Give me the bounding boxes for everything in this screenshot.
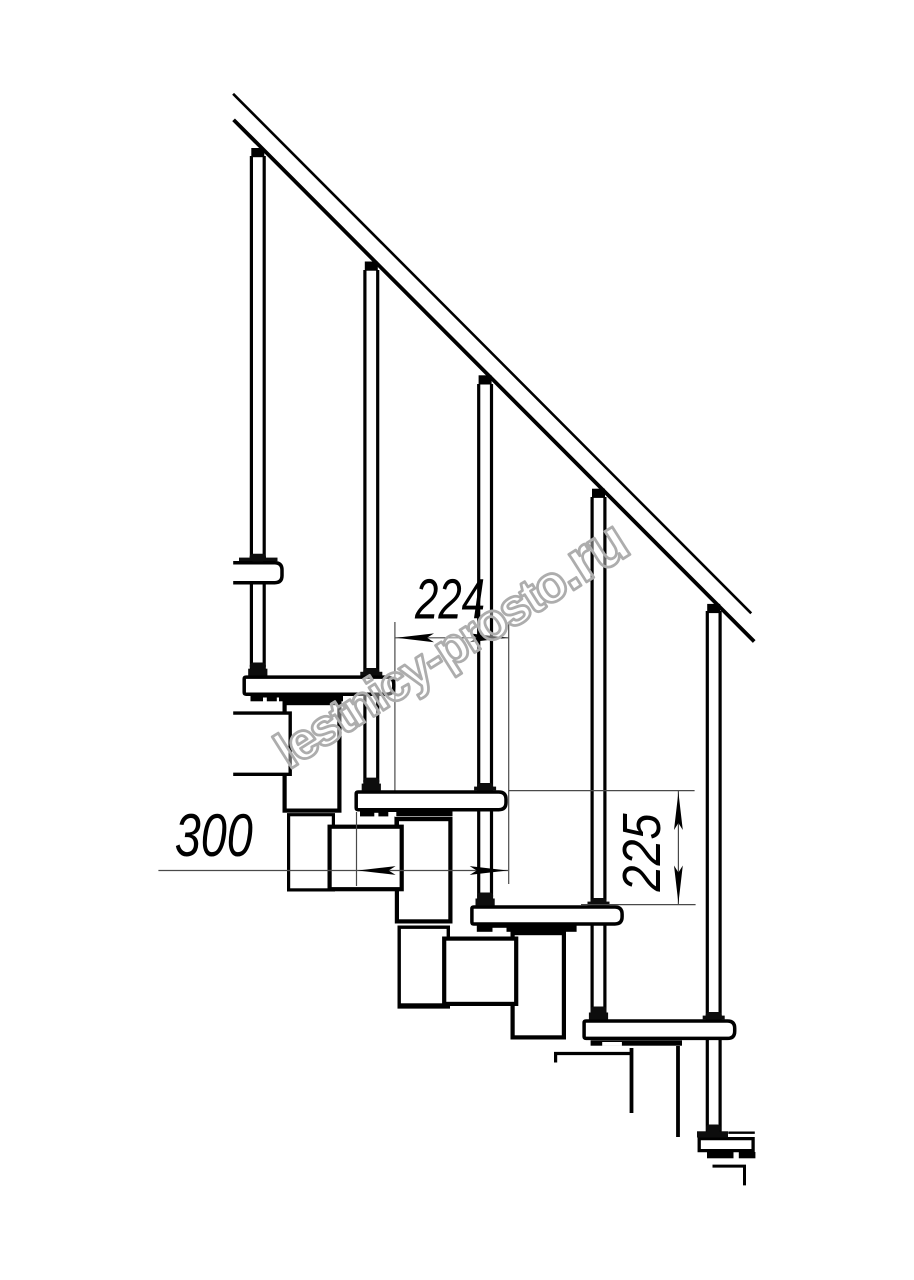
svg-text:300: 300 [175,802,253,869]
svg-text:225: 225 [612,813,672,893]
